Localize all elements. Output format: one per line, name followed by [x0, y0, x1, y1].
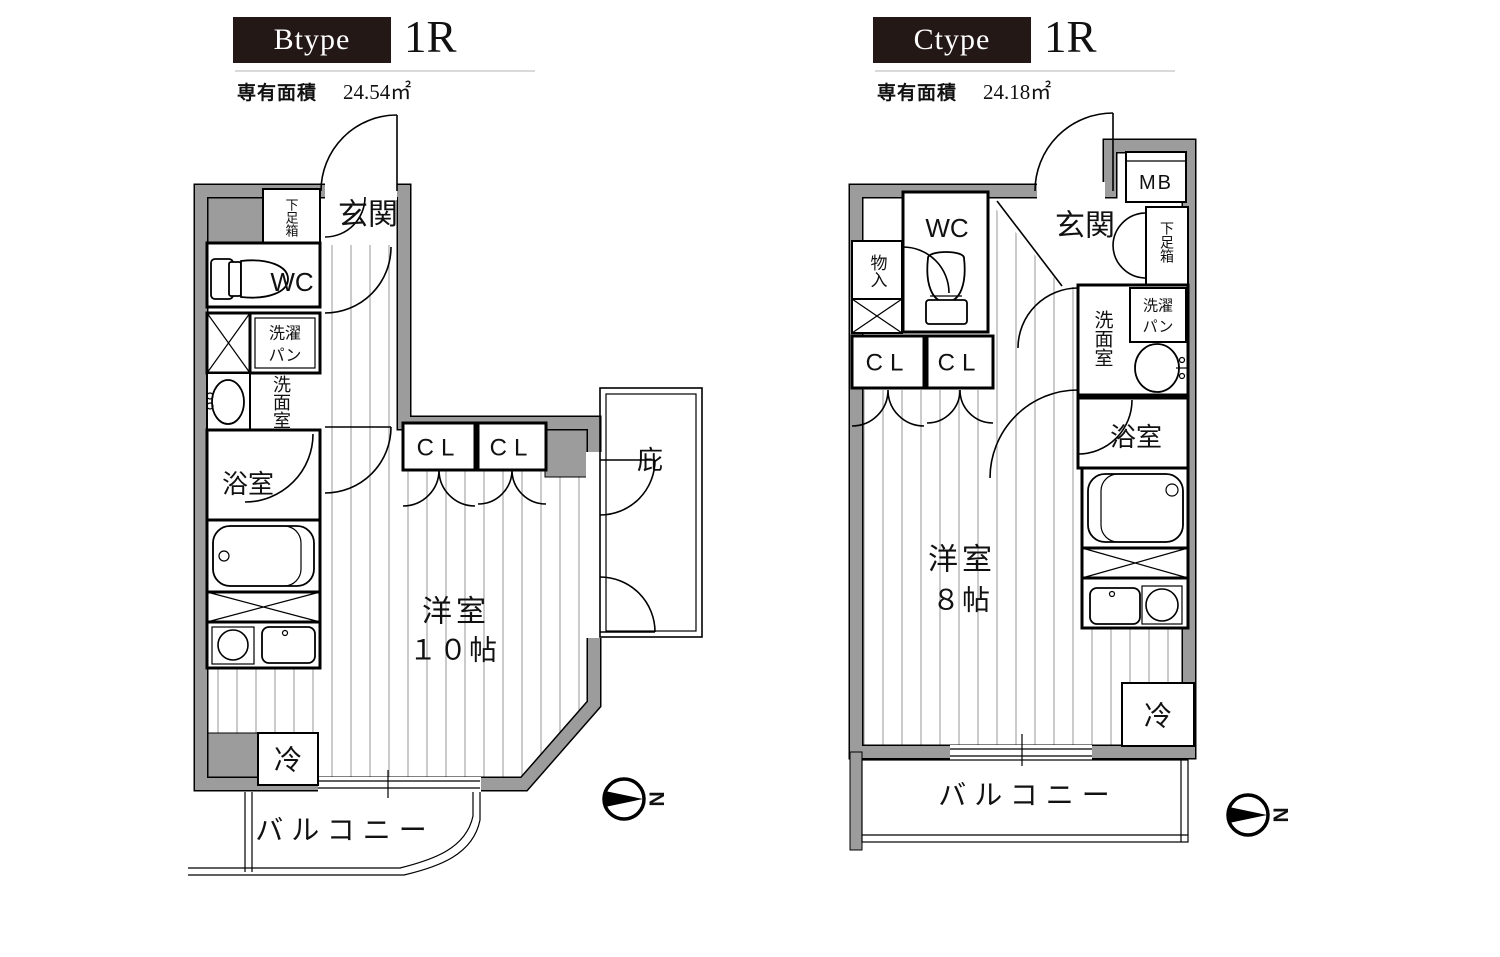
btype-balcony-label: バルコニー [255, 815, 434, 846]
btype-north-arrow-icon: N [604, 779, 668, 819]
btype-genkan-label: 玄関 [338, 199, 398, 232]
btype-closet-1-label: CL [417, 435, 462, 462]
toilet-icon [926, 252, 967, 324]
btype-north-label: N [645, 791, 668, 806]
btype-laundry-label-1: 洗濯 [269, 325, 301, 343]
ctype-fridge-label: 冷 [1144, 701, 1172, 732]
ctype-floor-plan: MB 玄関 下足箱 WC 物入 [850, 113, 1292, 850]
ctype-bath-label: 浴室 [1110, 422, 1162, 452]
btype-room-size-label: １０帖 [409, 635, 499, 666]
ctype-storage-label: 物入 [868, 254, 888, 288]
kitchen-sink-icon [1090, 588, 1140, 624]
btype-eaves-door-arcs [600, 460, 655, 632]
btype-floor-plan: 下足箱 玄関 WC 洗濯 パン [188, 115, 702, 875]
ctype-room-floor-right2 [1082, 683, 1122, 745]
ctype-laundry-label-2: パン [1143, 319, 1174, 336]
bathtub-icon [213, 526, 314, 586]
ctype-room-size-label: ８帖 [932, 585, 992, 616]
btype-washroom-label: 洗面室 [271, 375, 291, 429]
btype-closet-2-label: CL [490, 435, 535, 462]
ctype-mb-label: MB [1139, 172, 1173, 194]
floor-plans-drawing: 下足箱 玄関 WC 洗濯 パン [0, 0, 1500, 957]
btype-fridge-label: 冷 [274, 745, 302, 776]
btype-balcony: バルコニー [188, 792, 480, 875]
ctype-north-arrow-icon: N [1228, 795, 1292, 835]
ctype-balcony-label: バルコニー [938, 780, 1117, 811]
ctype-balcony-left-wall [850, 752, 862, 850]
ctype-entry-door-arc [1035, 113, 1113, 191]
ctype-shoe-box-label: 下足箱 [1159, 221, 1175, 263]
btype-wc-label: WC [270, 267, 313, 297]
ctype-balcony: バルコニー [850, 752, 1188, 850]
ctype-north-label: N [1269, 807, 1292, 822]
btype-shoe-box-label: 下足箱 [284, 198, 299, 237]
btype-eaves-door-leaves [600, 460, 655, 632]
floor-plan-sheet: Btype 1R 専有面積 24.54㎡ Ctype 1R 専有面積 24.18… [0, 0, 1500, 957]
btype-eaves-inner [606, 394, 696, 631]
btype-bath-label: 浴室 [222, 469, 274, 499]
ctype-room-label: 洋室 [928, 544, 996, 577]
ctype-entry-opening [1037, 182, 1105, 200]
ctype-genkan-label: 玄関 [1055, 210, 1115, 243]
btype-room-label: 洋室 [422, 596, 490, 629]
ctype-washroom-label: 洗面室 [1092, 310, 1114, 367]
kitchen-sink-icon [262, 627, 315, 663]
ctype-room-floor-right [1082, 628, 1188, 683]
btype-entry-opening [325, 182, 397, 200]
ctype-closet-2-label: CL [938, 350, 983, 377]
ctype-closet-1-label: CL [866, 350, 911, 377]
btype-laundry-label-2: パン [269, 348, 302, 365]
ctype-laundry-label-1: 洗濯 [1143, 298, 1173, 315]
ctype-window [950, 745, 1092, 760]
bathtub-icon [1088, 474, 1183, 542]
btype-window [318, 777, 481, 792]
btype-entry-door-arc [321, 115, 397, 191]
ctype-wc-label: WC [925, 213, 968, 243]
